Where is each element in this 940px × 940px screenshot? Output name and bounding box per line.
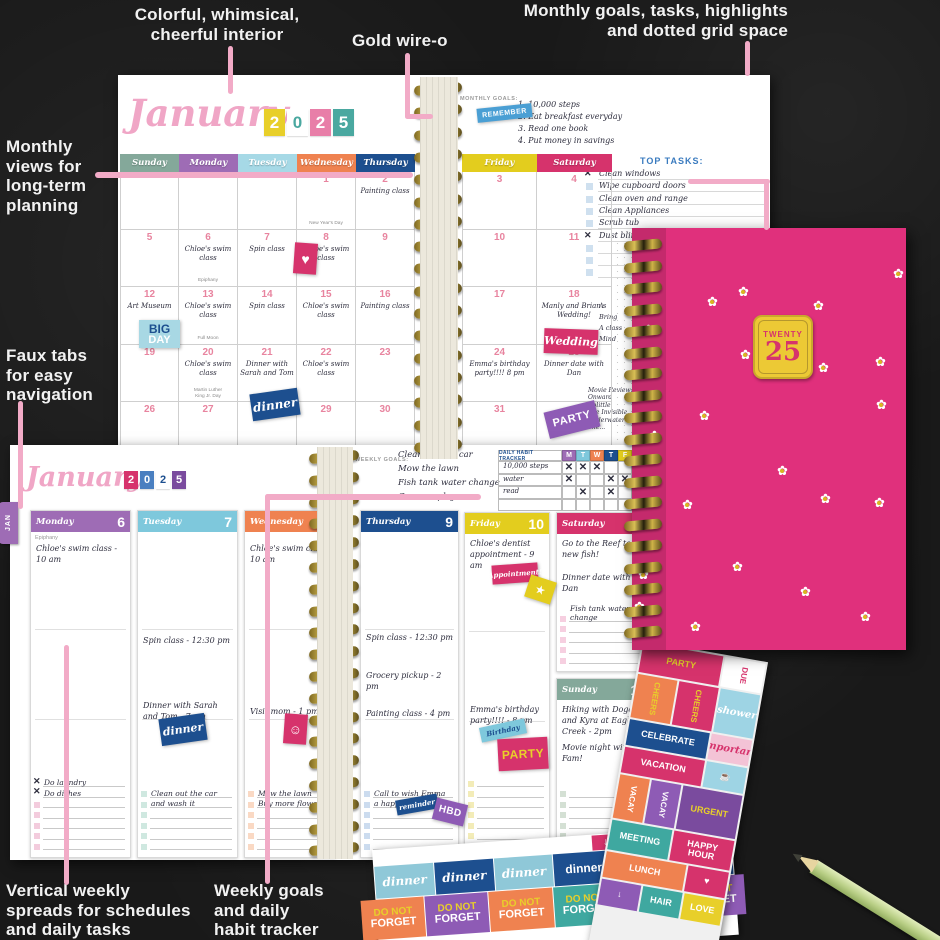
checklist-row xyxy=(141,809,234,820)
day-column-monday: Monday6EpiphanyChloe's swim class - 10 a… xyxy=(30,510,131,858)
cell-date: 3 xyxy=(463,172,536,185)
cell-entry: Chloe's swim class xyxy=(297,358,355,378)
checklist-rule xyxy=(43,807,125,808)
monthly-goal-item: 4. Put money in savings xyxy=(518,136,658,145)
calendar-cell: 11 xyxy=(537,230,612,288)
cell-date: 24 xyxy=(463,345,536,358)
checklist-square xyxy=(560,658,566,664)
calendar-cell xyxy=(120,172,179,230)
calendar-cell: 9 xyxy=(356,230,415,288)
day-header: Friday10 xyxy=(465,513,549,534)
checklist-rule xyxy=(477,786,544,787)
annotation-interior: Colorful, whimsical, cheerful interior xyxy=(128,5,306,44)
tracker-header: DAILY HABIT TRACKER xyxy=(498,450,562,461)
checklist-row xyxy=(141,830,234,841)
cell-date: 7 xyxy=(238,230,296,243)
checklist-row xyxy=(468,799,546,810)
checklist-rule xyxy=(373,828,453,829)
checklist-square xyxy=(560,802,566,808)
cell-date: 26 xyxy=(121,402,178,415)
cell-date: 12 xyxy=(121,287,178,300)
sheet-sticker: URGENT xyxy=(676,785,743,839)
checklist-row xyxy=(468,820,546,831)
cell-date: 11 xyxy=(537,230,611,243)
weekday-header: Tuesday xyxy=(238,154,297,172)
leader-line-faux-tabs xyxy=(18,401,23,509)
day-entry: Spin class - 12:30 pm xyxy=(143,636,234,647)
pencil xyxy=(789,847,940,940)
weekday-header: Thursday xyxy=(356,154,415,172)
checklist-row xyxy=(34,841,127,852)
calendar-cell: 4 xyxy=(537,172,612,230)
checklist-square xyxy=(34,812,40,818)
annotation-weekly-spreads: Vertical weekly spreads for schedules an… xyxy=(6,881,206,940)
dinner-sticker: dinner xyxy=(374,863,435,899)
checklist-x: ✕ xyxy=(33,776,41,787)
leader-line-goals-h xyxy=(688,179,770,184)
checklist-square xyxy=(141,812,147,818)
calendar-cell: 15Chloe's swim class xyxy=(297,287,356,345)
checklist-square xyxy=(248,812,254,818)
checklist-square xyxy=(248,791,254,797)
planner-cover: ✿✿✿✿✿✿✿✿✿✿✿✿✿✿✿✿✿✿✿✿✿ TWENTY 25 xyxy=(632,228,906,650)
annotation-gold-wire: Gold wire-o xyxy=(352,31,448,51)
day-divider xyxy=(142,629,233,630)
do-not-forget-sticker: DO NOTFORGET xyxy=(425,892,491,936)
tracker-mark-cell xyxy=(562,486,576,499)
daisy-center xyxy=(735,565,739,569)
sheet-sticker: VACAY xyxy=(613,774,650,823)
daisy-flower: ✿ xyxy=(690,620,701,633)
daisy-flower: ✿ xyxy=(874,496,885,509)
checklist-row: ✕Do laundry xyxy=(34,778,127,789)
annotation-weekly-goals: Weekly goals and daily habit tracker xyxy=(214,881,354,940)
daisy-center xyxy=(693,625,697,629)
task-rule xyxy=(598,191,768,192)
checklist-square xyxy=(248,802,254,808)
weekday-label: Saturday xyxy=(553,158,596,168)
do-not-forget-sticker: DO NOTFORGET xyxy=(489,888,555,932)
cell-entry: Painting class xyxy=(356,185,414,196)
task-rule xyxy=(598,204,768,205)
daisy-center xyxy=(821,366,825,370)
weekday-label: Wednesday xyxy=(300,158,353,168)
cell-date: 4 xyxy=(537,172,611,185)
checklist-label: Clean out the car xyxy=(151,789,217,798)
year-digit: 0 xyxy=(140,471,154,489)
day-number: 7 xyxy=(224,514,232,530)
leader-line-goals-v xyxy=(745,41,750,76)
daisy-flower: ✿ xyxy=(800,585,811,598)
leader-line-weekly-spreads xyxy=(64,645,69,885)
checklist-square xyxy=(364,823,370,829)
day-checklist: ✕Do laundry✕Do dishes xyxy=(34,778,127,852)
daisy-flower: ✿ xyxy=(707,295,718,308)
leader-line-weekly-goals-v xyxy=(265,494,270,884)
weekday-header: Friday xyxy=(462,154,537,172)
checklist-square xyxy=(34,844,40,850)
weekday-label: Thursday xyxy=(363,158,407,168)
cell-date: 10 xyxy=(463,230,536,243)
annotation-monthly-goals: Monthly goals, tasks, highlights and dot… xyxy=(500,1,788,40)
checklist-row xyxy=(468,778,546,789)
pencil-body xyxy=(809,860,940,940)
checklist-square xyxy=(141,844,147,850)
smiley-sticker: ☺ xyxy=(283,713,308,745)
daisy-center xyxy=(896,272,900,276)
tracker-day-letter: T xyxy=(576,450,590,461)
checklist-row: Call to wish Emma xyxy=(364,788,455,799)
monthly-goals-label: MONTHLY GOALS: xyxy=(460,96,518,102)
daisy-flower: ✿ xyxy=(860,610,871,623)
checklist-square xyxy=(34,823,40,829)
day-checklist: Clean out the carand wash it xyxy=(141,788,234,851)
leader-line-wire-v xyxy=(405,53,410,119)
checklist-square xyxy=(560,823,566,829)
wedding-sticker: Wedding xyxy=(544,328,599,355)
daisy-center xyxy=(741,290,745,294)
checklist-rule xyxy=(150,839,232,840)
weekday-label: Sunday xyxy=(132,158,167,168)
checklist-square xyxy=(560,637,566,643)
day-entry: Spin class - 12:30 pm xyxy=(366,633,455,644)
checklist-rule xyxy=(43,849,125,850)
cell-date: 14 xyxy=(238,287,296,300)
daisy-center xyxy=(823,497,827,501)
checklist-row xyxy=(34,820,127,831)
daisy-flower: ✿ xyxy=(738,285,749,298)
daisy-center xyxy=(863,615,867,619)
daisy-flower: ✿ xyxy=(740,348,751,361)
twenty25-badge: TWENTY 25 xyxy=(753,315,813,379)
tracker-row-label: read xyxy=(498,486,562,499)
checklist-square xyxy=(468,791,474,797)
day-entry: Chloe's swim class - 10 am xyxy=(36,544,127,566)
cell-entry: Chloe's swim class xyxy=(179,358,237,378)
tracker-mark-cell xyxy=(576,499,590,512)
day-name: Wednesday xyxy=(250,517,303,527)
leader-line-goals-v2 xyxy=(764,179,769,230)
day-number: 9 xyxy=(445,514,453,530)
checklist-square xyxy=(560,647,566,653)
daisy-center xyxy=(816,304,820,308)
checklist-square xyxy=(468,781,474,787)
calendar-cell: 17 xyxy=(462,287,537,345)
checklist-square xyxy=(364,791,370,797)
checklist-square xyxy=(141,802,147,808)
cell-date: 17 xyxy=(463,287,536,300)
day-column-tuesday: Tuesday7Spin class - 12:30 pmDinner with… xyxy=(137,510,238,858)
calendar-cell: 13Chloe's swim classFull Moon xyxy=(179,287,238,345)
year-digit: 2 xyxy=(264,109,285,136)
weekly-goal-item: Fish tank water change xyxy=(398,478,500,488)
forget-text: FORGET xyxy=(371,917,418,932)
tracker-mark-cell: ✕ xyxy=(604,486,618,499)
cell-holiday: Full Moon xyxy=(179,336,237,342)
day-header: Monday6 xyxy=(31,511,130,532)
calendar-cell: 5 xyxy=(120,230,179,288)
checklist-label: and wash it xyxy=(151,799,195,808)
weekday-header: Saturday xyxy=(537,154,612,172)
calendar-cell: 7Spin class xyxy=(238,230,297,288)
daisy-flower: ✿ xyxy=(699,409,710,422)
year-digit: 0 xyxy=(287,109,308,136)
checklist-rule xyxy=(43,818,125,819)
tracker-mark-cell: ✕ xyxy=(590,461,604,474)
sheet-sticker: VACAY xyxy=(644,780,681,829)
sheet-sticker: important xyxy=(708,734,753,767)
daisy-center xyxy=(685,503,689,507)
checklist-square xyxy=(141,833,147,839)
cell-date: 18 xyxy=(537,287,611,300)
daisy-center xyxy=(878,360,882,364)
weekly-year: 2025 xyxy=(124,471,186,489)
checklist-rule xyxy=(150,818,232,819)
weekday-label: Monday xyxy=(190,158,228,168)
cell-date: 27 xyxy=(179,402,237,415)
tracker-mark-cell xyxy=(590,499,604,512)
calendar-cell: 24Emma's birthday party!!!! 8 pm xyxy=(462,345,537,403)
checklist-row xyxy=(364,830,455,841)
cell-date: 22 xyxy=(297,345,355,358)
cell-entry: Emma's birthday party!!!! 8 pm xyxy=(463,358,536,378)
checklist-square xyxy=(34,833,40,839)
cell-date: 8 xyxy=(297,230,355,243)
daisy-center xyxy=(877,501,881,505)
checklist-row xyxy=(141,820,234,831)
sheet-sticker: ☕ xyxy=(703,761,748,794)
task-rule xyxy=(598,216,768,217)
checklist-label: Do dishes xyxy=(44,789,81,798)
cell-entry: Painting class xyxy=(356,300,414,311)
tracker-mark-cell xyxy=(604,499,618,512)
cell-holiday: New Year's Day xyxy=(297,221,355,227)
cell-date: 31 xyxy=(463,402,536,415)
calendar-cell: 3 xyxy=(462,172,537,230)
daisy-center xyxy=(702,414,706,418)
day-name: Monday xyxy=(36,517,74,527)
cell-date: 13 xyxy=(179,287,237,300)
sheet-sticker: CHEERS xyxy=(672,681,719,731)
checklist-rule xyxy=(569,653,646,654)
daisy-center xyxy=(641,573,645,577)
tracker-mark-cell xyxy=(590,474,604,487)
cell-entry: Chloe's swim class xyxy=(297,300,355,320)
day-divider xyxy=(35,629,126,630)
tracker-row-label: water xyxy=(498,474,562,487)
sheet-sticker: LOVE xyxy=(680,893,724,926)
cell-date: 6 xyxy=(179,230,237,243)
sheet-sticker: ↓ xyxy=(597,879,641,912)
leader-line-wire-h xyxy=(405,114,433,119)
checklist-square xyxy=(560,812,566,818)
checklist-square xyxy=(468,802,474,808)
calendar-cell: 16Painting class xyxy=(356,287,415,345)
daisy-center xyxy=(780,469,784,473)
daisy-flower: ✿ xyxy=(732,560,743,573)
sheet-sticker: DUE xyxy=(720,657,765,694)
checklist-square xyxy=(468,823,474,829)
tracker-row-label xyxy=(498,499,562,512)
checklist-row: Clean out the car xyxy=(141,788,234,799)
checklist-square xyxy=(34,802,40,808)
day-divider xyxy=(35,719,126,720)
heart-sticker: ♥ xyxy=(293,242,318,275)
big-day-sticker: BIGDAY xyxy=(139,320,180,348)
year-digit: 2 xyxy=(124,471,138,489)
checklist-square xyxy=(364,812,370,818)
checklist-square xyxy=(364,802,370,808)
day-entry: Grocery pickup - 2 pm xyxy=(366,671,455,693)
cell-entry: Chloe's swim class xyxy=(179,300,237,320)
leader-line-weekly-goals-h xyxy=(265,494,481,500)
weekday-header: Wednesday xyxy=(297,154,356,172)
checklist-rule xyxy=(373,839,453,840)
checklist-square xyxy=(560,626,566,632)
forget-text: FORGET xyxy=(499,908,546,923)
day-entry: Painting class - 4 pm xyxy=(366,709,455,720)
cell-entry: Manly and Brian's Wedding! xyxy=(537,300,611,320)
cell-date: 5 xyxy=(121,230,178,243)
tracker-mark-cell: ✕ xyxy=(562,474,576,487)
year-digit: 2 xyxy=(310,109,331,136)
checklist-square xyxy=(364,844,370,850)
checklist-row: and wash it xyxy=(141,799,234,810)
calendar-cell: 20Chloe's swim classMartin Luther King J… xyxy=(179,345,238,403)
do-not-forget-sticker: DO NOTFORGET xyxy=(361,897,427,940)
day-name: Thursday xyxy=(366,517,410,527)
annotation-monthly-views: Monthly views for long-term planning xyxy=(6,137,86,216)
checklist-rule xyxy=(569,663,646,664)
tracker-mark-cell xyxy=(604,461,618,474)
tracker-mark-cell: ✕ xyxy=(576,461,590,474)
daisy-flower: ✿ xyxy=(876,398,887,411)
sheet-sticker: CHEERS xyxy=(630,674,677,724)
checklist-rule xyxy=(150,849,232,850)
checklist-square xyxy=(468,812,474,818)
calendar-cell: 1New Year's Day xyxy=(297,172,356,230)
leader-line-monthly-views xyxy=(95,172,413,178)
checklist-square xyxy=(468,833,474,839)
checklist-square xyxy=(141,791,147,797)
calendar-cell: 14Spin class xyxy=(238,287,297,345)
sheet-sticker: ♥ xyxy=(684,866,729,899)
checklist-rule xyxy=(150,828,232,829)
big-day-line1: BIG xyxy=(149,323,170,335)
cell-date: 20 xyxy=(179,345,237,358)
checklist-row xyxy=(34,809,127,820)
weekday-label: Tuesday xyxy=(248,158,286,168)
calendar-cell: 23 xyxy=(356,345,415,403)
tracker-mark-cell xyxy=(576,474,590,487)
weekday-header: Monday xyxy=(179,154,238,172)
checklist-row xyxy=(560,655,648,666)
calendar-cell: 10 xyxy=(462,230,537,288)
tracker-day-letter: W xyxy=(590,450,604,461)
tracker-mark-cell xyxy=(590,486,604,499)
task-label: Wipe cupboard doors xyxy=(599,181,686,190)
weekly-wire-paper xyxy=(317,447,353,859)
weekday-header: Sunday xyxy=(120,154,179,172)
cell-entry: Art Museum xyxy=(121,300,178,311)
checklist-row xyxy=(468,809,546,820)
calendar-cell xyxy=(179,172,238,230)
checklist-square xyxy=(248,844,254,850)
tracker-mark-cell: ✕ xyxy=(562,461,576,474)
checklist-rule xyxy=(477,818,544,819)
checklist-square xyxy=(248,833,254,839)
checklist-square xyxy=(560,791,566,797)
tracker-day-letter: M xyxy=(562,450,576,461)
daisy-flower: ✿ xyxy=(818,361,829,374)
checklist-rule xyxy=(477,828,544,829)
tracker-row-label: 10,000 steps xyxy=(498,461,562,474)
checklist-square xyxy=(364,833,370,839)
calendar-cell: 6Chloe's swim classEpiphany xyxy=(179,230,238,288)
year-digit: 5 xyxy=(333,109,354,136)
day-name: Saturday xyxy=(562,519,605,529)
top-tasks-heading: TOP TASKS: xyxy=(640,156,704,166)
day-name: Tuesday xyxy=(143,517,181,527)
day-divider xyxy=(469,631,545,632)
monthly-year: 2025 xyxy=(264,109,354,136)
task-label: Clean oven and range xyxy=(599,194,688,203)
monthly-goal-item: 3. Read one book xyxy=(518,124,658,133)
tracker-mark-cell xyxy=(562,499,576,512)
calendar-cell: 2Painting class xyxy=(356,172,415,230)
leader-line-interior xyxy=(228,46,233,94)
cell-date: 29 xyxy=(297,402,355,415)
faux-tab-label: JAN xyxy=(5,514,12,531)
checklist-rule xyxy=(477,797,544,798)
daisy-flower: ✿ xyxy=(875,355,886,368)
cell-date: 23 xyxy=(356,345,414,358)
product-photo-stage: Colorful, whimsical, cheerful interior G… xyxy=(0,0,940,940)
weekday-label: Friday xyxy=(485,158,515,168)
daisy-center xyxy=(803,590,807,594)
checklist-row xyxy=(34,799,127,810)
cell-date: 9 xyxy=(356,230,414,243)
checklist-rule xyxy=(477,807,544,808)
cell-entry: Spin class xyxy=(238,243,296,254)
dinner-sticker: dinner xyxy=(434,859,495,895)
sheet-sticker: shower xyxy=(713,688,760,738)
sheet-sticker: HAIR xyxy=(639,886,683,919)
monthly-goal-item: 1. 10,000 steps xyxy=(518,100,658,109)
checklist-row xyxy=(468,788,546,799)
year-digit: 5 xyxy=(172,471,186,489)
day-header: Tuesday7 xyxy=(138,511,237,532)
checklist-square xyxy=(560,616,566,622)
calendar-cell: 22Chloe's swim class xyxy=(297,345,356,403)
cell-date: 15 xyxy=(297,287,355,300)
checklist-rule xyxy=(43,828,125,829)
checklist-rule xyxy=(43,839,125,840)
cell-entry: Dinner date with Dan xyxy=(537,358,611,378)
checklist-row: ✕Do dishes xyxy=(34,788,127,799)
checklist-x: ✕ xyxy=(33,786,41,797)
monthly-wire-paper xyxy=(420,77,458,459)
big-day-line2: DAY xyxy=(148,335,170,346)
day-name: Sunday xyxy=(562,685,597,695)
year-digit: 2 xyxy=(156,471,170,489)
daisy-center xyxy=(743,353,747,357)
day-number: 6 xyxy=(117,514,125,530)
daisy-flower: ✿ xyxy=(893,267,904,280)
daisy-flower: ✿ xyxy=(820,492,831,505)
checklist-row xyxy=(141,841,234,852)
checklist-square xyxy=(248,823,254,829)
